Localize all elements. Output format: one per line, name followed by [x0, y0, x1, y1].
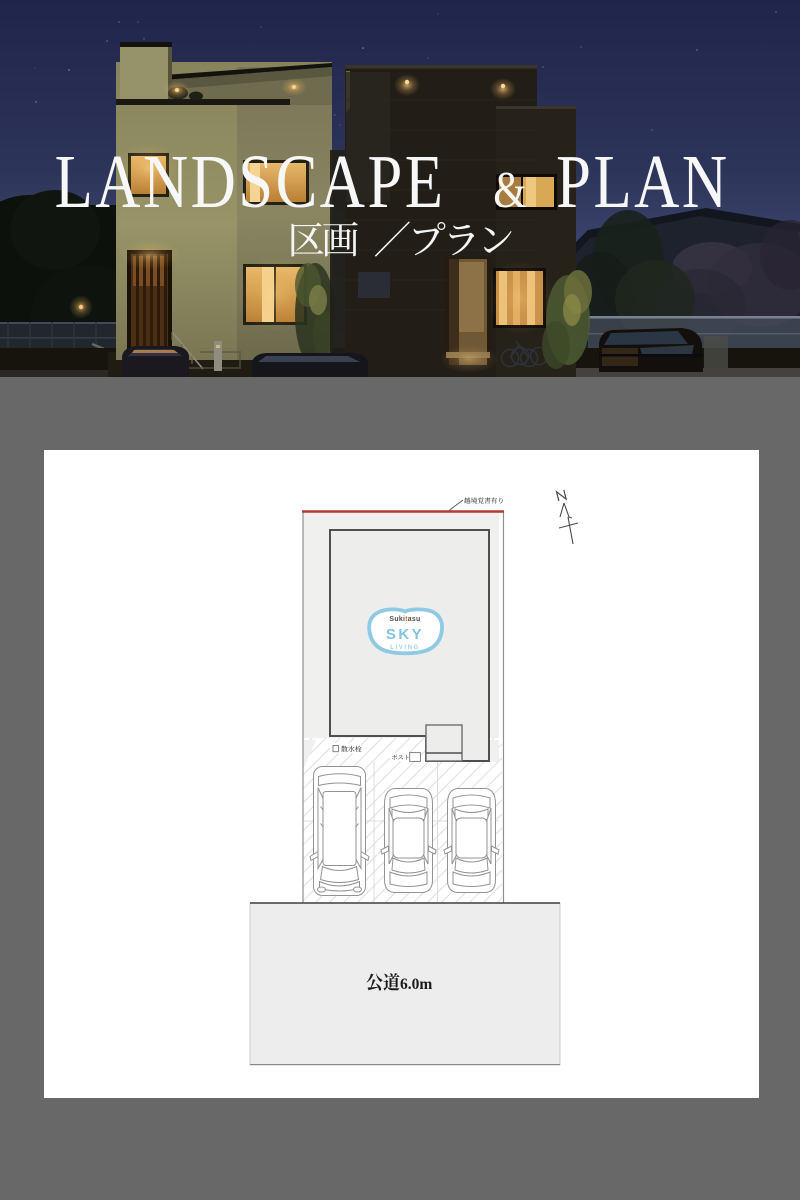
- svg-text:LIVING: LIVING: [390, 645, 420, 651]
- svg-text:Sukitasu: Sukitasu: [389, 616, 420, 623]
- svg-text:6.0m: 6.0m: [400, 976, 432, 993]
- svg-text:SKY: SKY: [386, 626, 424, 643]
